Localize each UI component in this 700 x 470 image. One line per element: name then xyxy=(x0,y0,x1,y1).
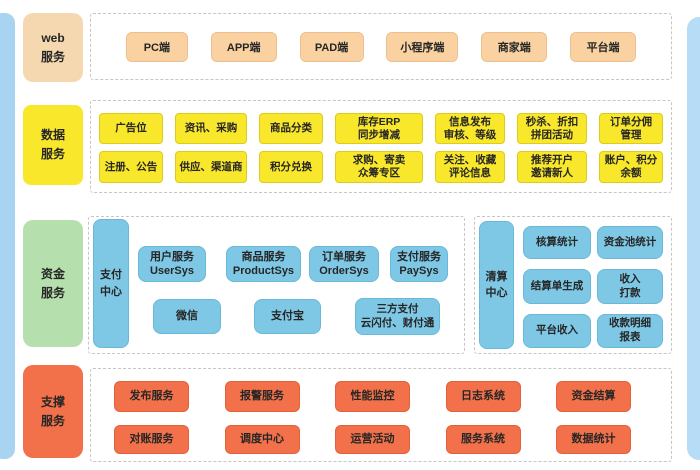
diagram-node: 资金池统计 xyxy=(597,226,663,259)
diagram-node: APP端 xyxy=(211,32,277,62)
diagram-node: PAD端 xyxy=(300,32,364,62)
payment-center-panel: 支付 中心 用户服务 UserSys 商品服务 ProductSys 订单服务 … xyxy=(88,216,465,354)
diagram-node: 结算单生成 xyxy=(523,269,591,304)
support-services-panel: 发布服务 报警服务 性能监控 日志系统 资金结算 对账服务 调度中心 运营活动 … xyxy=(90,368,672,462)
diagram-node: 商品分类 xyxy=(259,113,323,144)
diagram-node: 注册、公告 xyxy=(99,151,163,183)
diagram-node: PC端 xyxy=(126,32,188,62)
architecture-diagram: web 服务 数据 服务 资金 服务 支撑 服务 PC端 APP端 PAD端 小… xyxy=(0,0,700,470)
section-label-fund: 资金 服务 xyxy=(23,220,83,347)
diagram-node: 收入 打款 xyxy=(597,269,663,304)
payment-center-pillar: 支付 中心 xyxy=(93,219,129,348)
diagram-node: 发布服务 xyxy=(114,381,189,412)
diagram-node: 小程序端 xyxy=(386,32,458,62)
diagram-node: 供应、渠道商 xyxy=(175,151,247,183)
diagram-node: 支付宝 xyxy=(254,299,321,334)
data-services-panel: 广告位 资讯、采购 商品分类 库存ERP 同步增减 信息发布 审核、等级 秒杀、… xyxy=(90,100,672,193)
section-label-data: 数据 服务 xyxy=(23,105,83,185)
diagram-node: 报警服务 xyxy=(225,381,300,412)
left-accent-strip xyxy=(0,13,15,459)
clearing-center-pillar: 清算 中心 xyxy=(479,221,514,349)
diagram-node: 秒杀、折扣 拼团活动 xyxy=(517,113,587,144)
diagram-node: 收款明细 报表 xyxy=(597,314,663,348)
diagram-node: 求购、寄卖 众筹专区 xyxy=(335,151,423,183)
diagram-node: 资讯、采购 xyxy=(175,113,247,144)
diagram-node: 广告位 xyxy=(99,113,163,144)
diagram-node: 对账服务 xyxy=(114,425,189,454)
diagram-node: 核算统计 xyxy=(523,226,591,259)
clearing-center-panel: 清算 中心 核算统计 资金池统计 结算单生成 收入 打款 平台收入 收款明细 报… xyxy=(474,216,672,354)
diagram-node: 三方支付 云闪付、财付通 xyxy=(355,298,440,335)
diagram-node: 运营活动 xyxy=(335,425,410,454)
diagram-node: 平台收入 xyxy=(523,314,591,348)
diagram-node: 积分兑换 xyxy=(259,151,323,183)
diagram-node: 关注、收藏 评论信息 xyxy=(435,151,505,183)
diagram-node: 平台端 xyxy=(570,32,636,62)
diagram-node: 资金结算 xyxy=(556,381,631,412)
diagram-node: 日志系统 xyxy=(446,381,521,412)
section-label-support: 支撑 服务 xyxy=(23,365,83,458)
diagram-node: 性能监控 xyxy=(335,381,410,412)
diagram-node: 用户服务 UserSys xyxy=(138,246,206,282)
diagram-node: 账户、积分 余额 xyxy=(599,151,663,183)
diagram-node: 库存ERP 同步增减 xyxy=(335,113,423,144)
right-accent-strip xyxy=(687,17,700,460)
diagram-node: 微信 xyxy=(153,299,221,334)
section-label-web: web 服务 xyxy=(23,13,83,82)
diagram-node: 信息发布 审核、等级 xyxy=(435,113,505,144)
diagram-node: 商家端 xyxy=(481,32,547,62)
diagram-node: 商品服务 ProductSys xyxy=(226,246,301,282)
diagram-node: 推荐开户 邀请新人 xyxy=(517,151,587,183)
diagram-node: 订单服务 OrderSys xyxy=(309,246,379,282)
diagram-node: 数据统计 xyxy=(556,425,631,454)
diagram-node: 支付服务 PaySys xyxy=(390,246,448,282)
diagram-node: 服务系统 xyxy=(446,425,521,454)
diagram-node: 调度中心 xyxy=(225,425,300,454)
diagram-node: 订单分佣 管理 xyxy=(599,113,663,144)
web-services-panel: PC端 APP端 PAD端 小程序端 商家端 平台端 xyxy=(90,13,672,80)
